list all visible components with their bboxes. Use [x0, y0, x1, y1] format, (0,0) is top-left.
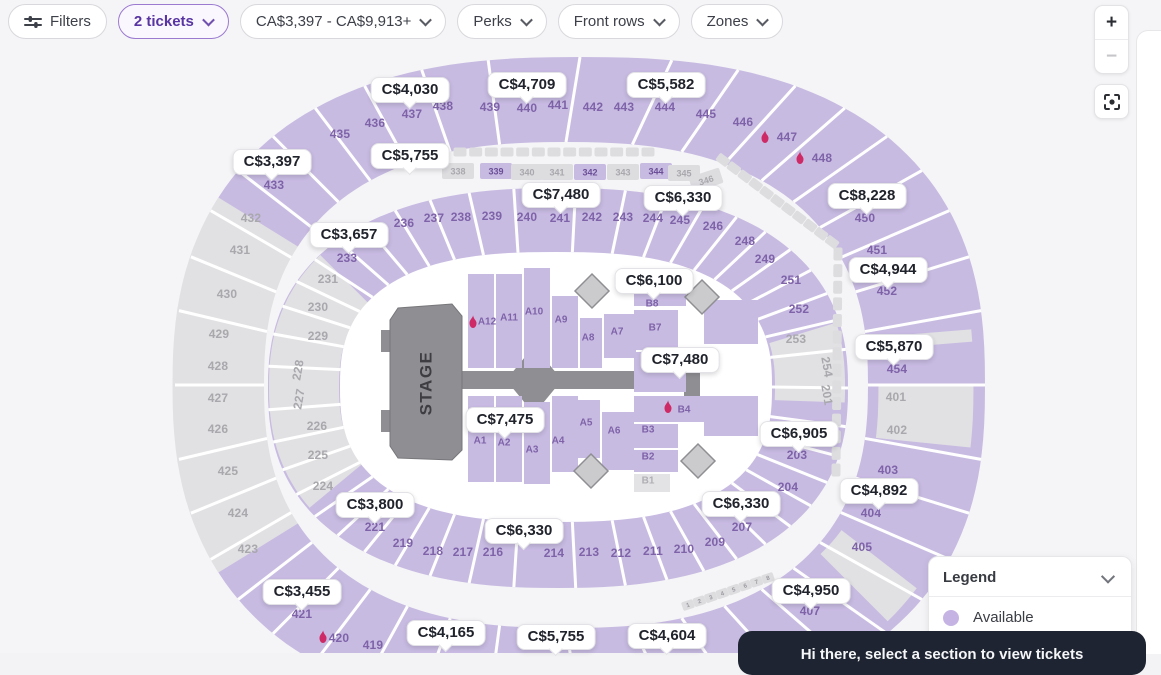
section-label-427[interactable]: 427 [208, 391, 229, 405]
section-label-448[interactable]: 448 [812, 151, 833, 165]
section-label-251[interactable]: 251 [781, 273, 802, 287]
section-label-244[interactable]: 244 [643, 211, 664, 225]
price-label[interactable]: C$6,100 [615, 268, 694, 294]
section-label-446[interactable]: 446 [733, 115, 754, 129]
price-label[interactable]: C$3,397 [233, 149, 312, 175]
perks-dropdown[interactable]: Perks [457, 4, 546, 39]
floor-label-A12[interactable]: A12 [478, 317, 496, 328]
bottom-toast[interactable]: Hi there, select a section to view ticke… [738, 631, 1146, 675]
section-label-209[interactable]: 209 [705, 535, 726, 549]
section-label-227[interactable]: 227 [290, 388, 307, 411]
section-label-207[interactable]: 207 [732, 520, 753, 534]
section-label-237[interactable]: 237 [424, 211, 445, 225]
floor-label-B3[interactable]: B3 [642, 425, 655, 436]
section-label-201[interactable]: 201 [818, 384, 835, 407]
legend-title: Legend [943, 569, 996, 586]
section-label-236[interactable]: 236 [394, 216, 415, 230]
floor-label-B4[interactable]: B4 [678, 405, 691, 416]
floor-label-A11[interactable]: A11 [500, 313, 518, 324]
section-label-403[interactable]: 403 [878, 463, 899, 477]
section-label-402[interactable]: 402 [887, 423, 908, 437]
section-label-424[interactable]: 424 [228, 506, 249, 520]
price-label[interactable]: C$6,330 [702, 491, 781, 517]
floor-label-A10[interactable]: A10 [525, 307, 543, 318]
section-label-405[interactable]: 405 [852, 540, 873, 554]
section-label-229[interactable]: 229 [308, 329, 329, 343]
filter-bar: Filters 2 tickets CA$3,397 - CA$9,913+ P… [8, 4, 783, 39]
floor-label-B1[interactable]: B1 [642, 476, 655, 487]
chevron-down-icon [653, 14, 666, 27]
section-label-431[interactable]: 431 [230, 243, 251, 257]
section-label-425[interactable]: 425 [218, 464, 239, 478]
floor-label-A3[interactable]: A3 [526, 445, 539, 456]
filters-button[interactable]: Filters [8, 4, 107, 39]
price-label[interactable]: C$4,892 [840, 478, 919, 504]
section-label-432[interactable]: 432 [241, 211, 262, 225]
section-label-442[interactable]: 442 [583, 100, 604, 114]
section-label-423[interactable]: 423 [238, 542, 259, 556]
section-label-429[interactable]: 429 [209, 327, 230, 341]
section-label-213[interactable]: 213 [579, 545, 600, 559]
price-label[interactable]: C$4,950 [772, 578, 851, 604]
section-label-443[interactable]: 443 [614, 100, 635, 114]
section-label-230[interactable]: 230 [308, 300, 329, 314]
price-label[interactable]: C$4,165 [407, 620, 486, 646]
section-label-435[interactable]: 435 [330, 127, 351, 141]
section-label-210[interactable]: 210 [674, 542, 695, 556]
price-label[interactable]: C$3,455 [263, 579, 342, 605]
chevron-down-icon [420, 14, 433, 27]
section-label-401[interactable]: 401 [886, 390, 907, 404]
floor-label-A5[interactable]: A5 [580, 418, 593, 429]
section-label-433[interactable]: 433 [264, 178, 285, 192]
sliders-icon [24, 15, 42, 29]
price-label[interactable]: C$4,604 [628, 623, 707, 649]
front-rows-dropdown[interactable]: Front rows [558, 4, 680, 39]
chevron-down-icon [520, 14, 533, 27]
price-label[interactable]: C$6,330 [644, 185, 723, 211]
toast-text: Hi there, select a section to view ticke… [738, 646, 1146, 663]
section-label-242[interactable]: 242 [582, 210, 603, 224]
section-label-225[interactable]: 225 [308, 448, 329, 462]
section-label-224[interactable]: 224 [313, 479, 334, 493]
deal-flame-icon [317, 630, 330, 645]
price-label[interactable]: C$4,030 [371, 77, 450, 103]
floor-label-B2[interactable]: B2 [642, 452, 655, 463]
floor-label-A7[interactable]: A7 [611, 327, 624, 338]
floor-label-A9[interactable]: A9 [555, 315, 568, 326]
section-label-204[interactable]: 204 [778, 480, 799, 494]
floor-label-A8[interactable]: A8 [582, 333, 595, 344]
deal-flame-icon [794, 151, 807, 166]
price-label[interactable]: C$4,944 [849, 257, 928, 283]
section-label-243[interactable]: 243 [613, 210, 634, 224]
zoom-controls: + − [1094, 5, 1129, 74]
section-label-228[interactable]: 228 [289, 359, 306, 382]
section-label-447[interactable]: 447 [777, 130, 798, 144]
floor-label-B7[interactable]: B7 [649, 323, 662, 334]
section-label-238[interactable]: 238 [451, 210, 472, 224]
deal-flame-icon [759, 130, 772, 145]
section-label-420[interactable]: 420 [329, 631, 350, 645]
chevron-down-icon [756, 14, 769, 27]
price-label[interactable]: C$5,582 [627, 72, 706, 98]
price-label[interactable]: C$7,480 [522, 182, 601, 208]
section-label-240[interactable]: 240 [517, 210, 538, 224]
section-label-216[interactable]: 216 [483, 545, 504, 559]
available-dot [943, 610, 959, 626]
floor-label-A1[interactable]: A1 [474, 436, 487, 447]
zoom-in-button[interactable]: + [1095, 6, 1128, 39]
section-label-454[interactable]: 454 [887, 362, 908, 376]
section-label-239[interactable]: 239 [482, 209, 503, 223]
chevron-down-icon [1101, 569, 1115, 583]
section-label-226[interactable]: 226 [307, 419, 328, 433]
section-label-436[interactable]: 436 [365, 116, 386, 130]
section-label-253[interactable]: 253 [786, 332, 807, 346]
filters-label: Filters [50, 13, 91, 30]
section-label-430[interactable]: 430 [217, 287, 238, 301]
deal-flame-icon [467, 315, 480, 330]
section-label-439[interactable]: 439 [480, 100, 501, 114]
section-label-441[interactable]: 441 [548, 98, 569, 112]
section-label-212[interactable]: 212 [611, 546, 632, 560]
section-label-246[interactable]: 246 [703, 219, 724, 233]
section-label-217[interactable]: 217 [453, 545, 474, 559]
section-label-451[interactable]: 451 [867, 243, 888, 257]
section-label-218[interactable]: 218 [423, 544, 444, 558]
chevron-down-icon [202, 14, 215, 27]
section-label-437[interactable]: 437 [402, 107, 423, 121]
section-label-219[interactable]: 219 [393, 536, 414, 550]
zoom-out-button[interactable]: − [1095, 40, 1128, 73]
section-label-252[interactable]: 252 [789, 302, 810, 316]
reset-view-button[interactable] [1094, 84, 1129, 119]
price-label[interactable]: C$7,475 [466, 407, 545, 433]
legend-header[interactable]: Legend [929, 557, 1131, 597]
section-label-445[interactable]: 445 [696, 107, 717, 121]
price-label[interactable]: C$3,657 [310, 222, 389, 248]
side-panel-edge [1136, 30, 1161, 654]
ticket-quantity-dropdown[interactable]: 2 tickets [118, 4, 229, 39]
price-label[interactable]: C$4,709 [488, 72, 567, 98]
zones-dropdown[interactable]: Zones [691, 4, 784, 39]
price-label[interactable]: C$5,755 [517, 624, 596, 650]
section-label-231[interactable]: 231 [318, 272, 339, 286]
section-label-249[interactable]: 249 [755, 252, 776, 266]
price-label[interactable]: C$5,755 [371, 143, 450, 169]
section-label-428[interactable]: 428 [208, 359, 229, 373]
price-label[interactable]: C$7,480 [641, 347, 720, 373]
floor-label-A6[interactable]: A6 [608, 426, 621, 437]
price-label[interactable]: C$3,800 [336, 492, 415, 518]
section-label-211[interactable]: 211 [643, 544, 663, 558]
section-label-214[interactable]: 214 [544, 546, 565, 560]
price-label[interactable]: C$6,905 [760, 421, 839, 447]
deal-flame-icon [662, 400, 675, 415]
floor-label-B8[interactable]: B8 [646, 299, 659, 310]
section-label-426[interactable]: 426 [208, 422, 229, 436]
price-label[interactable]: C$6,330 [485, 518, 564, 544]
section-label-254[interactable]: 254 [818, 356, 835, 379]
section-label-419[interactable]: 419 [363, 638, 384, 652]
reset-view-icon [1104, 94, 1120, 110]
price-label[interactable]: C$5,870 [855, 334, 934, 360]
price-range-dropdown[interactable]: CA$3,397 - CA$9,913+ [240, 4, 447, 39]
section-label-248[interactable]: 248 [735, 234, 756, 248]
price-label[interactable]: C$8,228 [828, 183, 907, 209]
floor-label-A4[interactable]: A4 [552, 436, 565, 447]
legend-item-label: Available [973, 609, 1034, 626]
